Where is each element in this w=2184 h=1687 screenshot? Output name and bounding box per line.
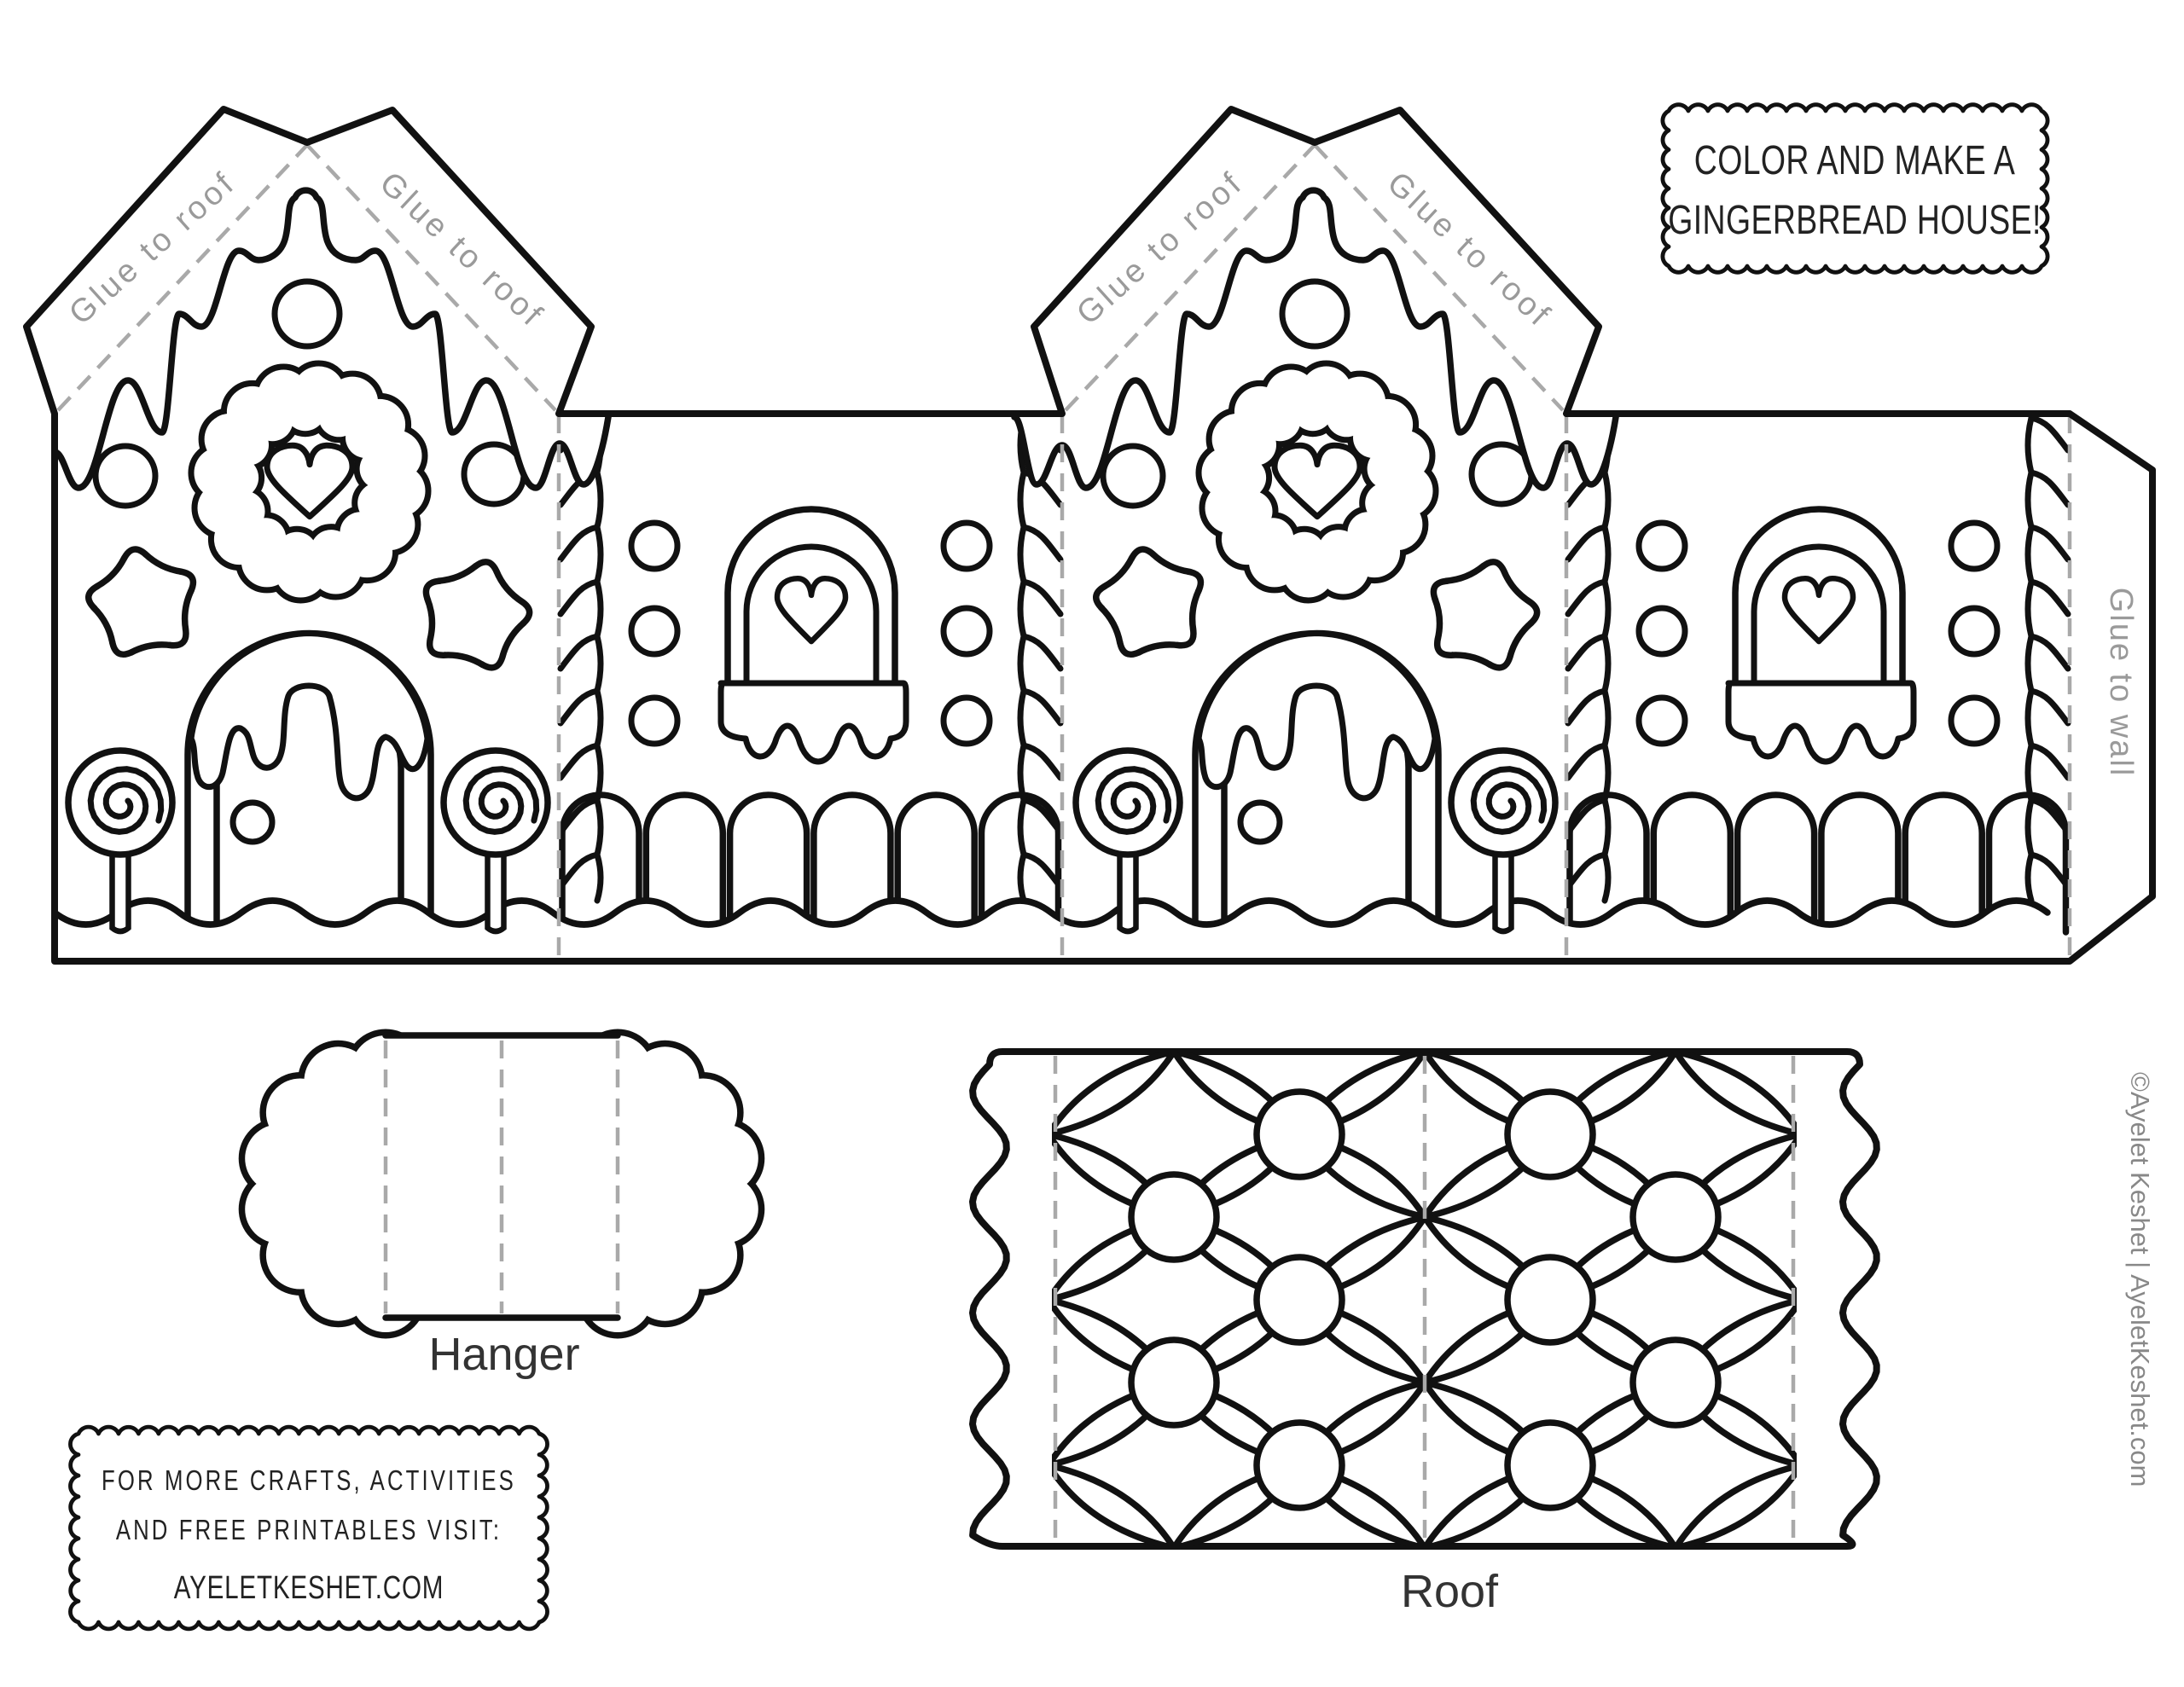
svg-text:Hanger: Hanger — [428, 1329, 579, 1380]
svg-text:GINGERBREAD HOUSE!: GINGERBREAD HOUSE! — [1668, 198, 2042, 244]
svg-text:COLOR AND MAKE A: COLOR AND MAKE A — [1694, 138, 2015, 184]
svg-text:AND FREE PRINTABLES VISIT:: AND FREE PRINTABLES VISIT: — [116, 1515, 502, 1546]
svg-text:Roof: Roof — [1401, 1566, 1499, 1617]
svg-text:©Ayelet Keshet | AyeletKeshet.: ©Ayelet Keshet | AyeletKeshet.com — [2125, 1072, 2155, 1487]
svg-text:AYELETKESHET.COM: AYELETKESHET.COM — [174, 1570, 444, 1606]
svg-text:Glue to wall: Glue to wall — [2103, 588, 2139, 778]
svg-text:FOR MORE CRAFTS, ACTIVITIES: FOR MORE CRAFTS, ACTIVITIES — [102, 1465, 516, 1497]
